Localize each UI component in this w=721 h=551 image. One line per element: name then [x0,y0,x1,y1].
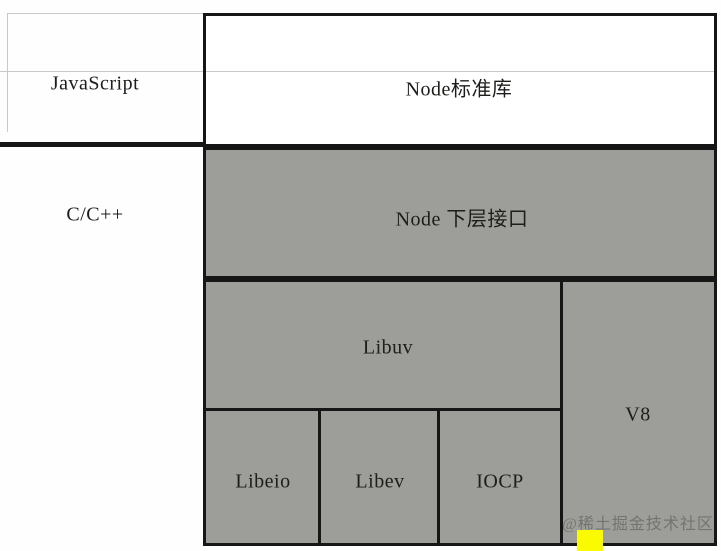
libev-label: Libev [355,471,404,494]
c-cpp-label: C/C++ [66,204,123,227]
v8-label: V8 [625,404,650,427]
left-table-top-line [7,13,203,14]
javascript-label: JavaScript [51,73,139,96]
yellow-highlight-rect [577,530,603,551]
node-architecture-diagram: JavaScript C/C++ Node标准库 Node 下层接口 Libuv… [0,0,721,551]
left-table-vertical-line [7,13,8,132]
node-lower-interface-label: Node 下层接口 [396,203,529,232]
node-standard-library-label: Node标准库 [406,73,513,102]
libeio-label: Libeio [235,471,290,494]
libuv-label: Libuv [363,337,413,360]
iocp-label: IOCP [476,471,524,494]
